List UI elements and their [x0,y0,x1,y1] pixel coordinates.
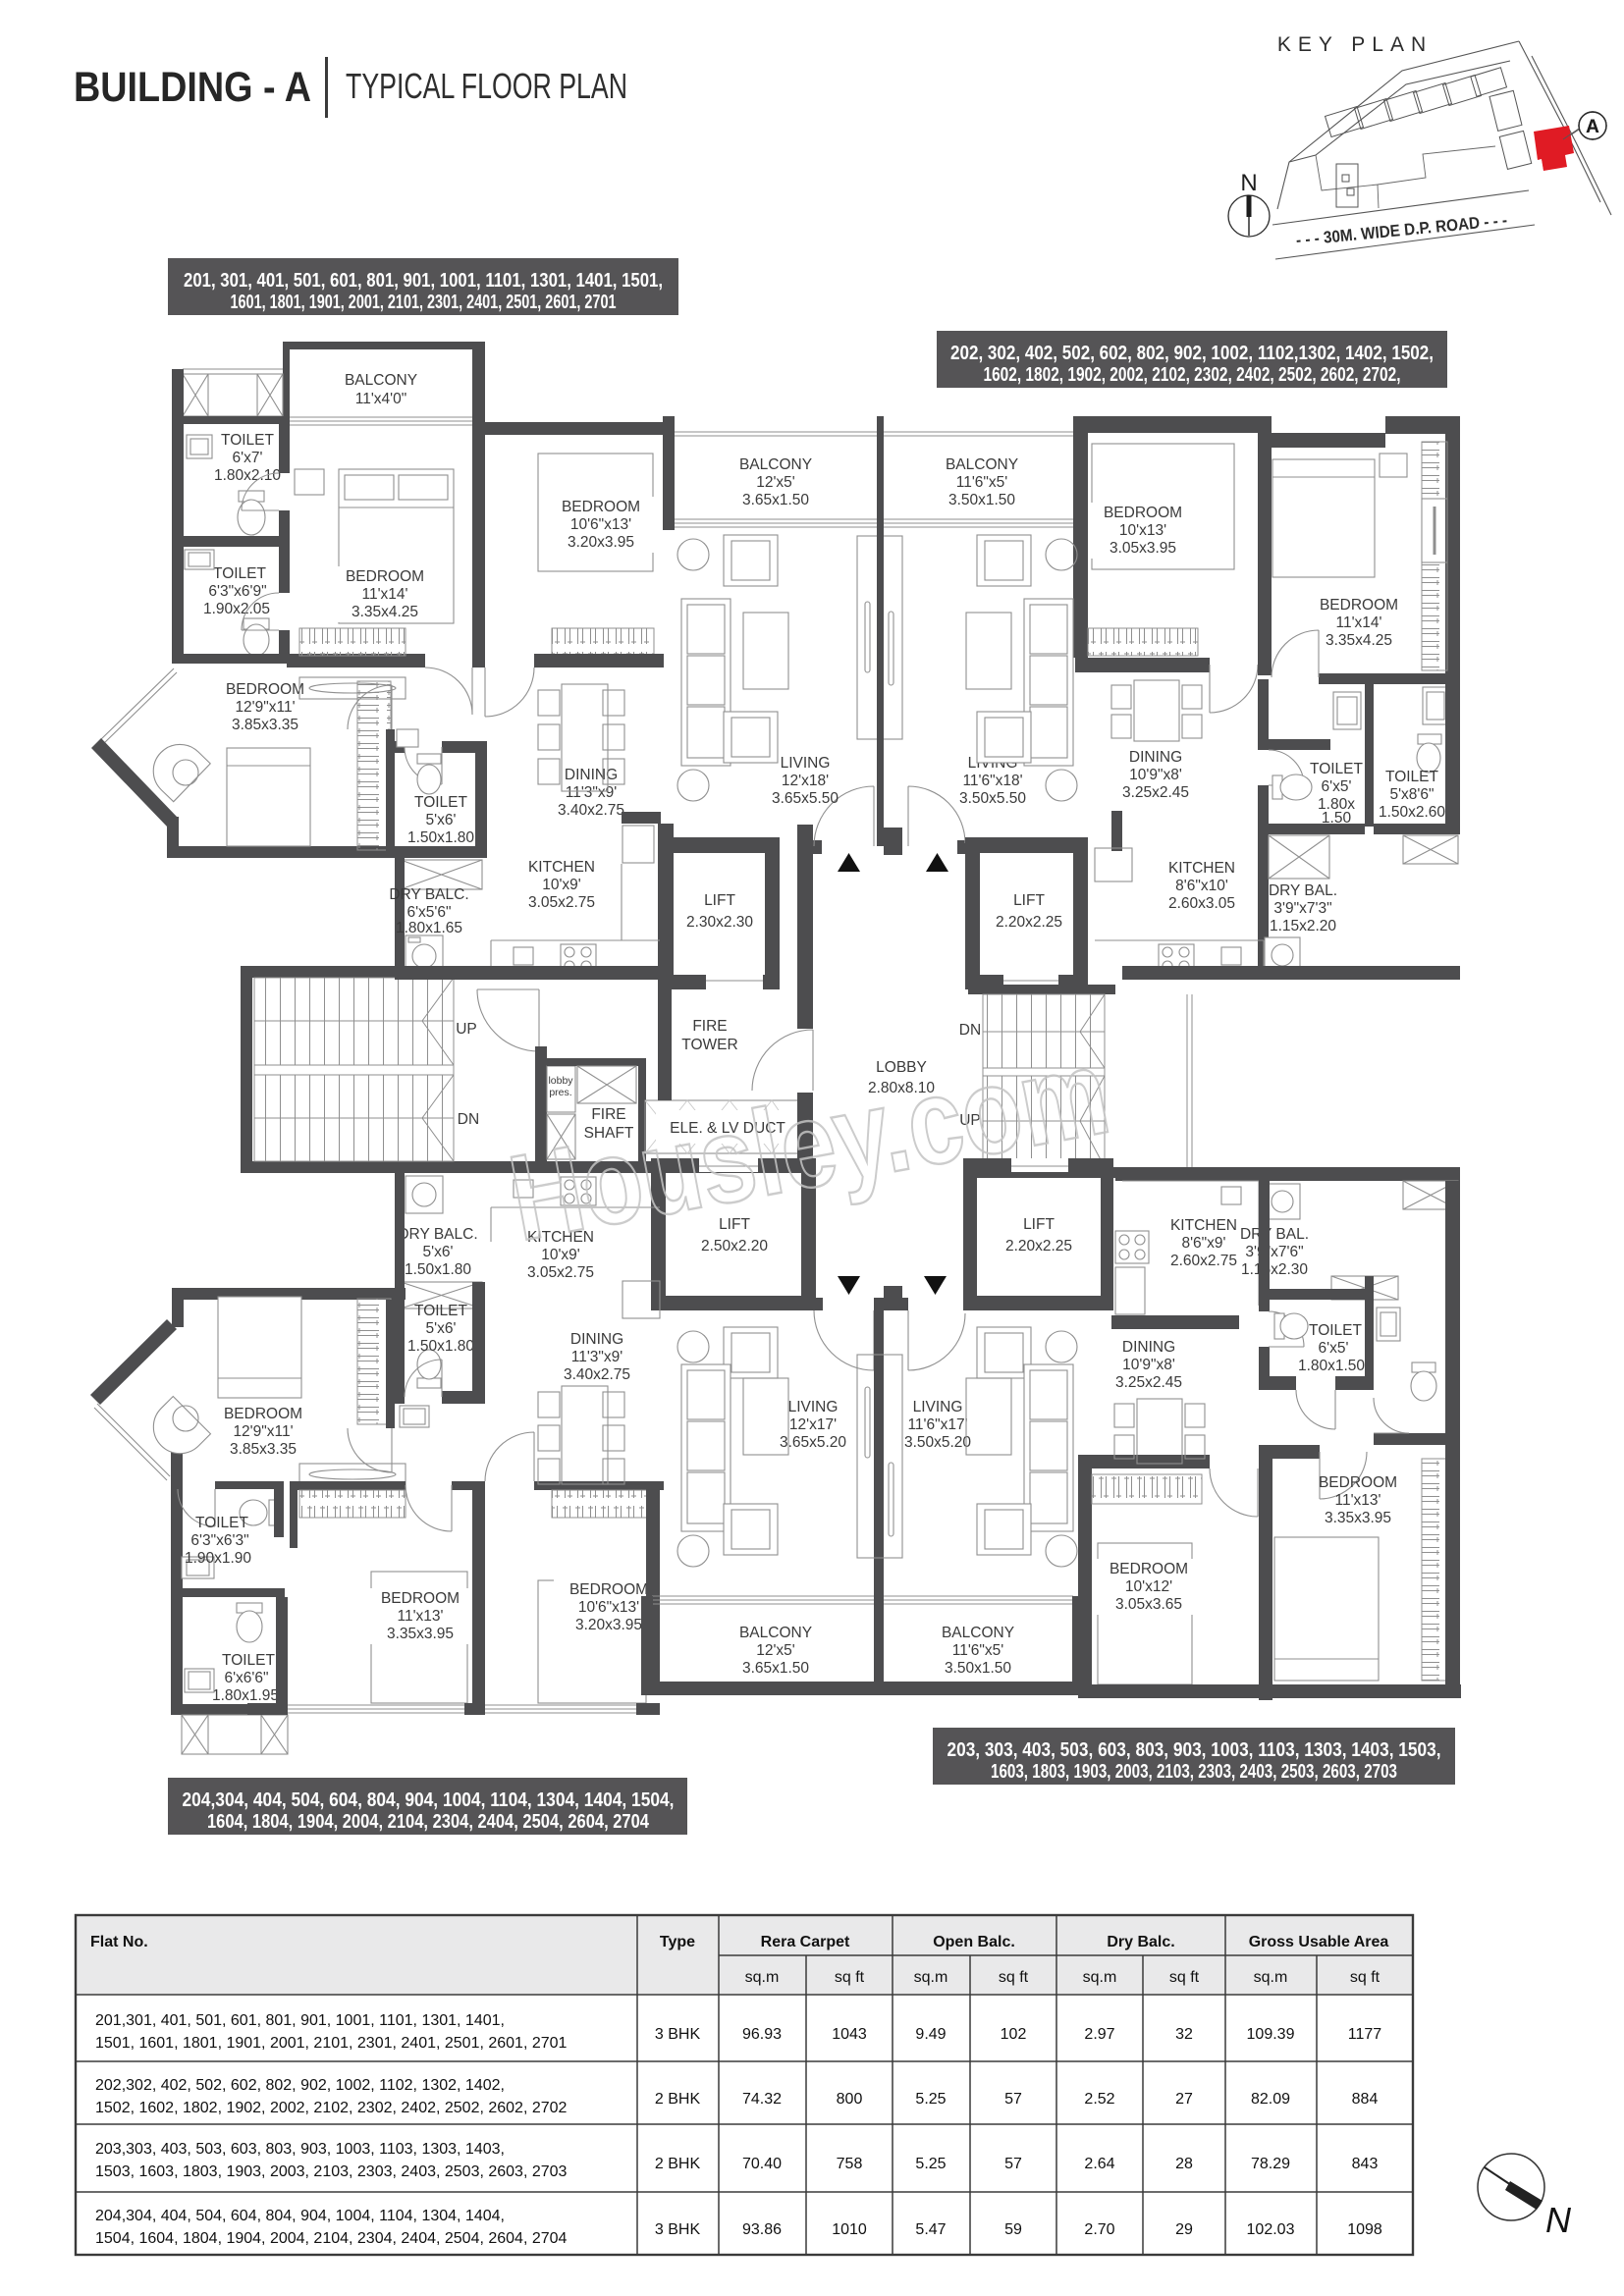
svg-text:2.64: 2.64 [1084,2156,1114,2172]
svg-text:3.05x2.75: 3.05x2.75 [527,1264,594,1281]
svg-text:884: 884 [1352,2091,1379,2108]
svg-text:12'x5': 12'x5' [756,1642,795,1659]
svg-text:BEDROOM: BEDROOM [1319,1474,1397,1491]
svg-text:2.70: 2.70 [1084,2221,1114,2238]
svg-text:3.25x2.45: 3.25x2.45 [1115,1374,1182,1391]
svg-text:TYPICAL FLOOR PLAN: TYPICAL FLOOR PLAN [346,66,627,106]
svg-text:BUILDING - A: BUILDING - A [74,64,311,111]
svg-text:1604, 1804, 1904, 2004, 2104,: 1604, 1804, 1904, 2004, 2104, 2304, 2404… [207,1811,650,1833]
svg-text:78.29: 78.29 [1251,2156,1290,2172]
svg-text:11'x4'0": 11'x4'0" [355,391,407,407]
svg-text:3.40x2.75: 3.40x2.75 [558,802,624,819]
svg-text:3.05x2.75: 3.05x2.75 [528,894,595,911]
svg-text:27: 27 [1175,2091,1193,2108]
svg-text:10'x12': 10'x12' [1125,1578,1172,1595]
svg-text:lobby: lobby [548,1075,573,1087]
svg-text:sq.m: sq.m [745,1969,780,1986]
svg-text:12'9"x11': 12'9"x11' [235,699,295,716]
svg-text:1.90x2.05: 1.90x2.05 [203,601,270,617]
svg-text:102.03: 102.03 [1247,2221,1295,2238]
svg-text:74.32: 74.32 [742,2091,782,2108]
svg-text:BEDROOM: BEDROOM [1104,505,1182,521]
svg-text:11'3"x9': 11'3"x9' [571,1349,623,1365]
svg-text:N: N [1240,170,1257,196]
svg-text:BEDROOM: BEDROOM [569,1581,648,1598]
svg-text:6'x6'6": 6'x6'6" [224,1670,268,1686]
svg-text:1503, 1603, 1803, 1903, 2003,: 1503, 1603, 1803, 1903, 2003, 2103, 2303… [95,2163,568,2180]
svg-text:1010: 1010 [832,2221,867,2238]
svg-text:BALCONY: BALCONY [942,1625,1014,1641]
svg-text:29: 29 [1175,2221,1193,2238]
svg-text:2 BHK: 2 BHK [655,2091,701,2108]
svg-text:1501, 1601, 1801, 1901, 2001,: 1501, 1601, 1801, 1901, 2001, 2101, 2301… [95,2035,568,2052]
svg-text:96.93: 96.93 [742,2026,782,2043]
svg-text:2.50x2.20: 2.50x2.20 [701,1238,768,1255]
svg-text:DINING: DINING [1129,749,1182,766]
svg-text:2.20x2.25: 2.20x2.25 [1005,1238,1072,1255]
svg-text:1601, 1801, 1901, 2001, 2101,: 1601, 1801, 1901, 2001, 2101, 2301, 2401… [231,292,617,313]
svg-text:1098: 1098 [1347,2221,1382,2238]
svg-text:TOILET: TOILET [414,794,468,811]
svg-text:3.50x5.20: 3.50x5.20 [904,1434,971,1451]
svg-text:1603, 1803, 1903, 2003, 2103,: 1603, 1803, 1903, 2003, 2103, 2303, 2403… [991,1761,1397,1783]
svg-text:11'6"x5': 11'6"x5' [956,474,1008,491]
svg-text:Flat No.: Flat No. [90,1934,148,1950]
svg-text:DRY BALC.: DRY BALC. [398,1226,477,1243]
svg-text:DINING: DINING [1122,1339,1175,1356]
svg-text:10'9"x8': 10'9"x8' [1122,1357,1175,1373]
svg-text:9.49: 9.49 [915,2026,946,2043]
svg-text:UP: UP [456,1021,477,1038]
svg-text:LIVING: LIVING [913,1399,963,1415]
svg-text:TOILET: TOILET [221,432,275,449]
svg-text:3.65x5.50: 3.65x5.50 [772,790,839,807]
svg-text:11'x14': 11'x14' [362,586,408,603]
svg-text:DRY BAL.: DRY BAL. [1269,882,1337,899]
svg-text:10'6"x13': 10'6"x13' [570,516,631,533]
svg-text:5'x8'6": 5'x8'6" [1389,786,1434,803]
svg-text:28: 28 [1175,2156,1193,2172]
svg-text:201,301, 401, 501, 601, 801, 9: 201,301, 401, 501, 601, 801, 901, 1001, … [95,2012,505,2029]
svg-text:8'6"x10': 8'6"x10' [1175,878,1228,894]
svg-text:LIFT: LIFT [1013,892,1045,909]
svg-text:DN: DN [959,1022,981,1039]
svg-text:TOILET: TOILET [222,1652,276,1669]
svg-text:BALCONY: BALCONY [946,456,1018,473]
svg-text:Type: Type [660,1934,695,1950]
svg-text:3 BHK: 3 BHK [655,2221,701,2238]
svg-text:sq ft: sq ft [1169,1969,1200,1986]
svg-text:201, 301, 401, 501, 601, 801,: 201, 301, 401, 501, 601, 801, 901, 1001,… [184,270,663,292]
svg-text:5.47: 5.47 [915,2221,946,2238]
svg-text:3.50x1.50: 3.50x1.50 [945,1660,1011,1677]
svg-text:204,304, 404, 504, 604, 804, 9: 204,304, 404, 504, 604, 804, 904, 1004, … [95,2208,505,2224]
svg-text:TOILET: TOILET [213,565,267,582]
svg-text:1.50x2.60: 1.50x2.60 [1379,804,1445,821]
svg-text:3.35x4.25: 3.35x4.25 [352,604,418,620]
svg-text:3.50x1.50: 3.50x1.50 [948,492,1015,508]
svg-text:1.90x1.90: 1.90x1.90 [185,1550,251,1567]
svg-text:12'x17': 12'x17' [789,1416,837,1433]
svg-text:BEDROOM: BEDROOM [1320,597,1398,614]
svg-text:59: 59 [1004,2221,1022,2238]
svg-text:3'9"x7'6": 3'9"x7'6" [1245,1244,1303,1260]
svg-text:82.09: 82.09 [1251,2091,1290,2108]
svg-text:3.35x3.95: 3.35x3.95 [387,1626,454,1642]
svg-text:A: A [1586,117,1599,137]
svg-text:3.35x3.95: 3.35x3.95 [1325,1510,1391,1526]
svg-text:10'x9': 10'x9' [542,877,581,893]
svg-text:11'x14': 11'x14' [1336,614,1382,631]
svg-text:3.20x3.95: 3.20x3.95 [568,534,634,551]
svg-text:11'6"x5': 11'6"x5' [952,1642,1004,1659]
svg-text:TOILET: TOILET [1310,761,1364,777]
svg-text:2.20x2.25: 2.20x2.25 [996,914,1062,931]
svg-text:6'x5'6": 6'x5'6" [406,904,451,921]
svg-text:pres.: pres. [549,1087,571,1098]
svg-text:203,303, 403, 503, 603, 803, 9: 203,303, 403, 503, 603, 803, 903, 1003, … [95,2141,505,2158]
svg-text:BEDROOM: BEDROOM [381,1590,460,1607]
svg-text:11'6"x17': 11'6"x17' [907,1416,967,1433]
svg-text:3'9"x7'3": 3'9"x7'3" [1273,900,1331,917]
svg-text:sq ft: sq ft [1350,1969,1380,1986]
svg-text:sq.m: sq.m [914,1969,948,1986]
svg-text:12'x18': 12'x18' [782,773,829,789]
svg-text:5'x6': 5'x6' [423,1244,454,1260]
svg-text:10'x13': 10'x13' [1119,522,1166,539]
svg-text:Gross Usable Area: Gross Usable Area [1249,1934,1389,1950]
svg-text:102: 102 [1001,2026,1027,2043]
svg-text:57: 57 [1004,2156,1022,2172]
svg-text:202, 302, 402, 502, 602, 802,: 202, 302, 402, 502, 602, 802, 902, 1002,… [950,343,1434,364]
svg-text:6'x5': 6'x5' [1322,778,1352,795]
svg-text:1043: 1043 [832,2026,867,2043]
svg-text:sq ft: sq ft [835,1969,865,1986]
svg-text:11'3"x9': 11'3"x9' [566,784,618,801]
svg-text:LIFT: LIFT [704,892,735,909]
svg-text:1.15x2.30: 1.15x2.30 [1241,1261,1308,1278]
svg-text:DINING: DINING [565,767,618,783]
svg-text:3.65x1.50: 3.65x1.50 [742,1660,809,1677]
svg-text:800: 800 [837,2091,863,2108]
svg-text:204,304, 404, 504, 604, 804, 9: 204,304, 404, 504, 604, 804, 904, 1004, … [183,1789,675,1811]
svg-text:KITCHEN: KITCHEN [1170,1217,1237,1234]
svg-text:TOILET: TOILET [1385,769,1439,785]
svg-text:5'x6': 5'x6' [426,812,457,828]
svg-text:TOILET: TOILET [195,1515,249,1531]
svg-text:3.85x3.35: 3.85x3.35 [230,1441,297,1458]
svg-text:BALCONY: BALCONY [739,1625,812,1641]
svg-text:12'9"x11': 12'9"x11' [233,1423,293,1440]
svg-text:6'x7': 6'x7' [233,450,263,466]
svg-text:2.97: 2.97 [1084,2026,1114,2043]
svg-text:10'6"x13': 10'6"x13' [578,1599,639,1616]
svg-text:TOILET: TOILET [414,1303,468,1319]
svg-text:sq ft: sq ft [999,1969,1029,1986]
svg-text:DRY BAL.: DRY BAL. [1240,1226,1309,1243]
svg-text:N: N [1545,2200,1572,2240]
svg-text:5.25: 5.25 [915,2156,946,2172]
svg-text:3.20x3.95: 3.20x3.95 [575,1617,642,1633]
svg-text:11'6"x18': 11'6"x18' [962,773,1022,789]
svg-text:10'9"x8': 10'9"x8' [1129,767,1182,783]
svg-text:3.05x3.65: 3.05x3.65 [1115,1596,1182,1613]
svg-text:LIVING: LIVING [781,755,831,772]
svg-text:8'6"x9': 8'6"x9' [1181,1235,1225,1252]
svg-text:12'x5': 12'x5' [756,474,795,491]
svg-text:BEDROOM: BEDROOM [224,1406,302,1422]
svg-text:1.80x1.65: 1.80x1.65 [396,920,462,936]
svg-text:3.65x1.50: 3.65x1.50 [742,492,809,508]
svg-text:1.80x1.50: 1.80x1.50 [1298,1358,1365,1374]
svg-text:1.50x1.80: 1.50x1.80 [407,829,474,846]
svg-text:BEDROOM: BEDROOM [226,681,304,698]
svg-text:3.85x3.35: 3.85x3.35 [232,717,298,733]
svg-text:sq.m: sq.m [1254,1969,1288,1986]
svg-text:57: 57 [1004,2091,1022,2108]
svg-text:KEY PLAN: KEY PLAN [1277,33,1433,56]
svg-text:1.15x2.20: 1.15x2.20 [1270,918,1336,934]
svg-text:5'x6': 5'x6' [426,1320,457,1337]
svg-text:3 BHK: 3 BHK [655,2026,701,2043]
svg-text:2.60x2.75: 2.60x2.75 [1170,1253,1237,1269]
svg-text:3.25x2.45: 3.25x2.45 [1122,784,1189,801]
svg-text:KITCHEN: KITCHEN [528,859,595,876]
svg-text:2.30x2.30: 2.30x2.30 [686,914,753,931]
svg-text:BEDROOM: BEDROOM [562,499,640,515]
svg-text:1504, 1604, 1804, 1904, 2004,: 1504, 1604, 1804, 1904, 2004, 2104, 2304… [95,2230,568,2247]
svg-text:202,302, 402, 502, 602, 802, 9: 202,302, 402, 502, 602, 802, 902, 1002, … [95,2077,505,2094]
svg-text:Open Balc.: Open Balc. [933,1934,1015,1950]
svg-text:TOWER: TOWER [681,1037,737,1053]
svg-text:5.25: 5.25 [915,2091,946,2108]
svg-text:758: 758 [837,2156,863,2172]
svg-text:1.50x1.80: 1.50x1.80 [405,1261,471,1278]
svg-text:203, 303, 403, 503, 603, 803,: 203, 303, 403, 503, 603, 803, 903, 1003,… [947,1739,1441,1761]
svg-text:3.05x3.95: 3.05x3.95 [1110,540,1176,557]
svg-text:6'3"x6'3": 6'3"x6'3" [190,1532,248,1549]
svg-text:2.52: 2.52 [1084,2091,1114,2108]
svg-text:BEDROOM: BEDROOM [346,568,424,585]
svg-text:93.86: 93.86 [742,2221,782,2238]
svg-text:11'x13': 11'x13' [1335,1492,1381,1509]
svg-text:2.60x3.05: 2.60x3.05 [1168,895,1235,912]
svg-text:DN: DN [458,1111,479,1128]
svg-text:BALCONY: BALCONY [345,372,417,389]
svg-text:3.35x4.25: 3.35x4.25 [1326,632,1392,649]
svg-text:Dry Balc.: Dry Balc. [1107,1934,1174,1950]
svg-text:3.40x2.75: 3.40x2.75 [564,1366,630,1383]
svg-text:11'x13': 11'x13' [398,1608,444,1625]
svg-text:Rera Carpet: Rera Carpet [761,1934,850,1950]
svg-text:1.80x2.10: 1.80x2.10 [214,467,281,484]
svg-text:DINING: DINING [570,1331,623,1348]
svg-text:32: 32 [1175,2026,1193,2043]
svg-text:3.50x5.50: 3.50x5.50 [959,790,1026,807]
svg-text:1.80x1.95: 1.80x1.95 [212,1687,279,1704]
svg-text:109.39: 109.39 [1247,2026,1295,2043]
svg-text:BEDROOM: BEDROOM [1110,1561,1188,1577]
svg-text:70.40: 70.40 [742,2156,782,2172]
svg-text:1602, 1802, 1902, 2002, 2102,: 1602, 1802, 1902, 2002, 2102, 2302, 2402… [984,364,1401,386]
svg-text:1502, 1602, 1802, 1902, 2002,: 1502, 1602, 1802, 1902, 2002, 2102, 2302… [95,2100,568,2116]
svg-text:FIRE: FIRE [692,1018,727,1035]
svg-text:6'3"x6'9": 6'3"x6'9" [208,583,266,600]
svg-text:843: 843 [1352,2156,1379,2172]
svg-text:LIFT: LIFT [1023,1216,1055,1233]
svg-text:DRY BALC.: DRY BALC. [389,886,468,903]
svg-text:1177: 1177 [1348,2026,1382,2043]
svg-text:KITCHEN: KITCHEN [1168,860,1235,877]
svg-text:sq.m: sq.m [1083,1969,1117,1986]
svg-text:BALCONY: BALCONY [739,456,812,473]
svg-text:1.50x1.80: 1.50x1.80 [407,1338,474,1355]
svg-text:LIVING: LIVING [788,1399,839,1415]
svg-text:3.65x5.20: 3.65x5.20 [780,1434,846,1451]
svg-text:6'x5': 6'x5' [1319,1340,1349,1357]
svg-text:2 BHK: 2 BHK [655,2156,701,2172]
svg-text:TOILET: TOILET [1309,1322,1363,1339]
